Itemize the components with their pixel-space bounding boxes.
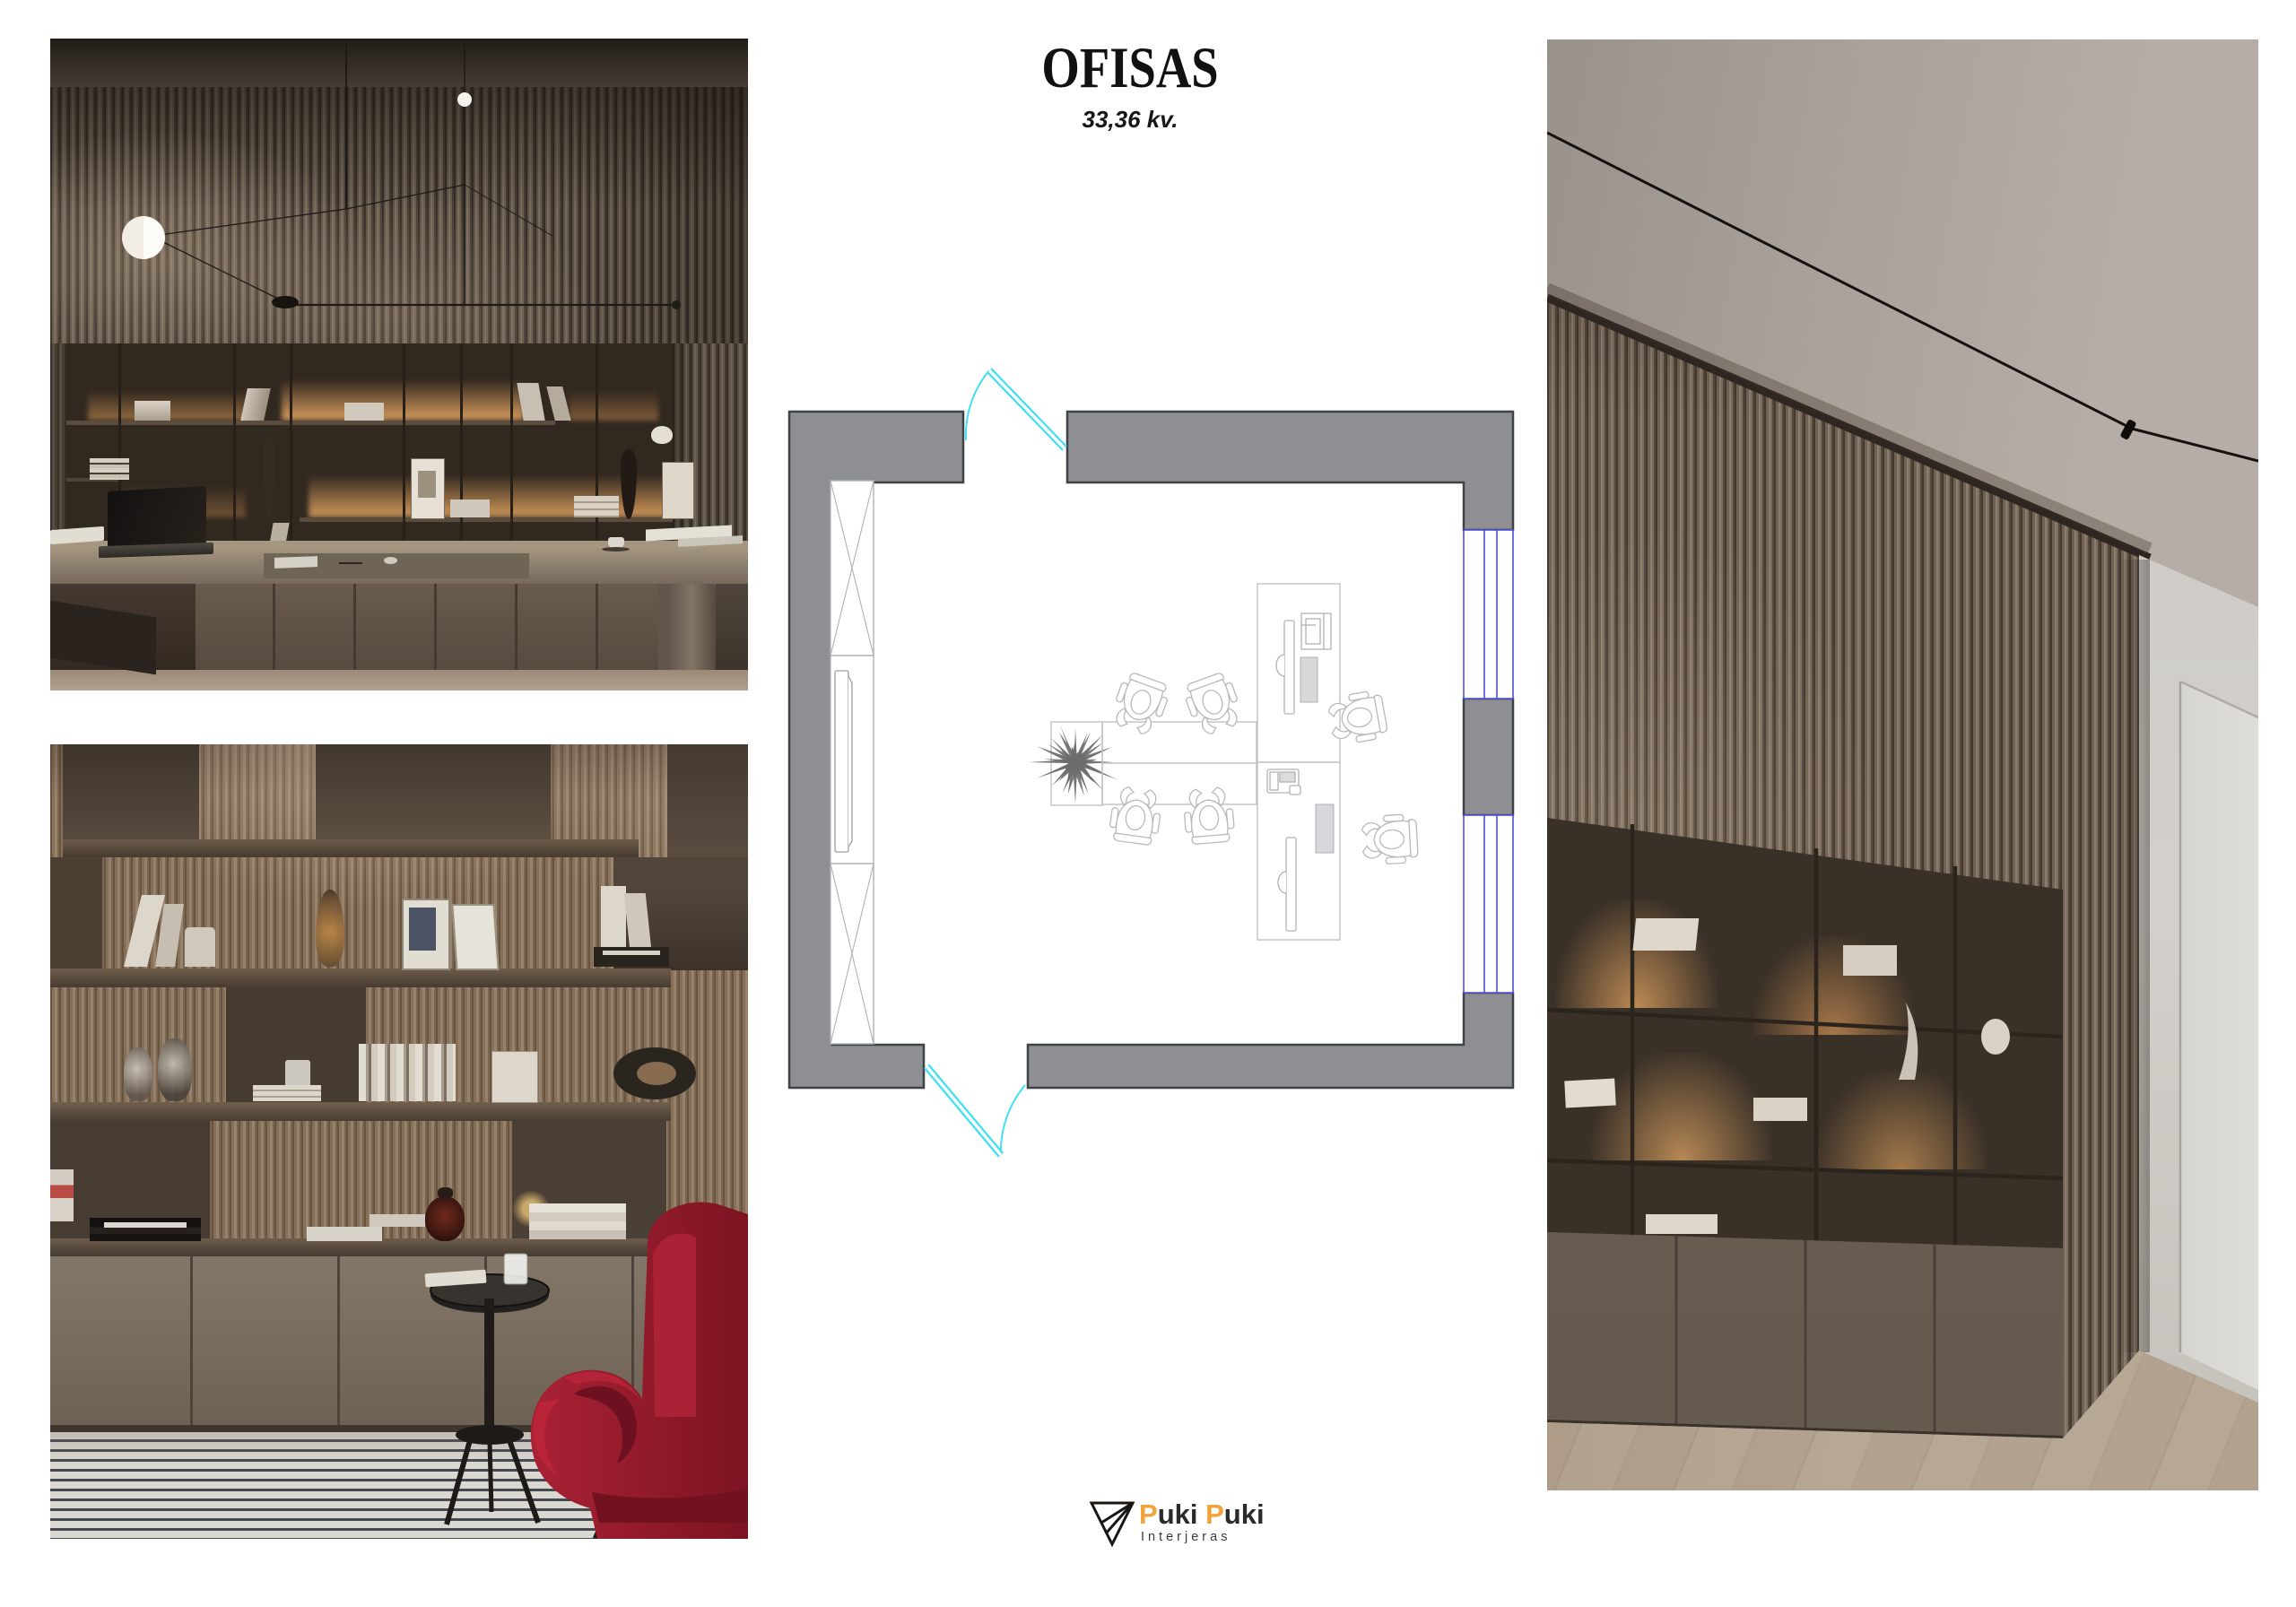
- svg-text:Puki Puki: Puki Puki: [1139, 1498, 1265, 1530]
- svg-text:Interjeras: Interjeras: [1141, 1530, 1231, 1544]
